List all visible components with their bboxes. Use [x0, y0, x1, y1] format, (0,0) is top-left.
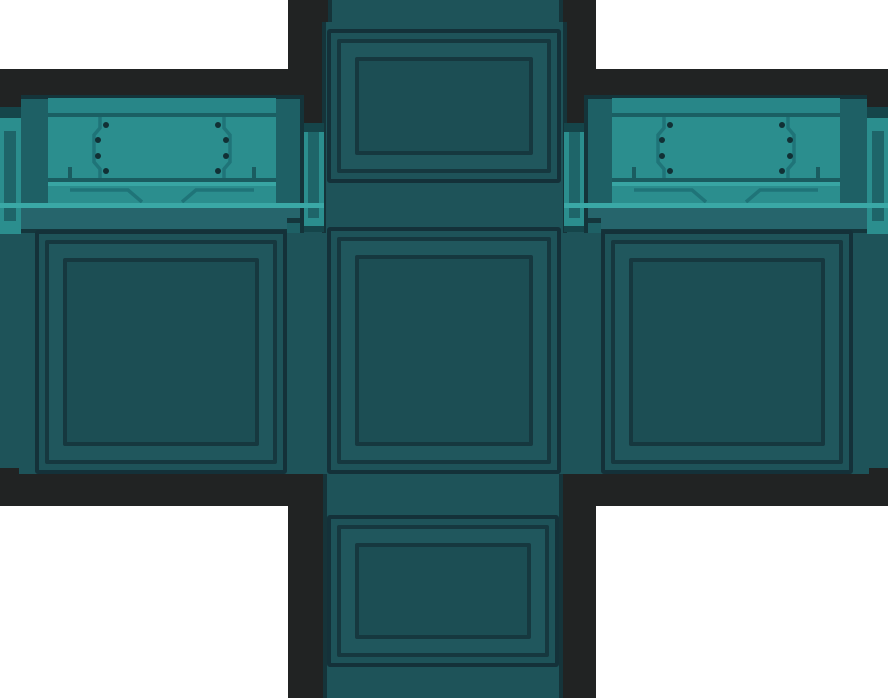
lid-lower-bar — [612, 186, 840, 203]
lid-top-bar — [48, 98, 276, 113]
plate-seam-left — [94, 117, 100, 178]
plate-tick-left — [68, 167, 72, 178]
rivet-dot — [787, 153, 793, 159]
rivet-dot — [223, 137, 229, 143]
side-face-panel — [35, 230, 287, 474]
lower-bar-groove-right — [634, 190, 706, 202]
outer-clasp-cap — [867, 107, 888, 118]
lower-bar-detail — [612, 186, 840, 203]
front-face-panel — [327, 227, 561, 474]
lower-bar-groove-left — [746, 190, 818, 202]
plate-seam-right — [224, 117, 230, 178]
rivet-dot — [223, 153, 229, 159]
bottom-face-field — [355, 543, 531, 639]
lip-band — [601, 207, 867, 229]
lip-extension-bottom-edge — [588, 218, 601, 223]
lid-riveted-plate — [48, 117, 276, 178]
lip-band-extension — [287, 207, 300, 218]
top-face-field — [355, 57, 533, 155]
lid-lower-bar — [48, 186, 276, 203]
rivet-dot — [659, 137, 665, 143]
rivet-dot — [787, 137, 793, 143]
side-face-panel — [601, 230, 853, 474]
lip-band — [21, 207, 287, 229]
lid-top-bar — [612, 98, 840, 113]
hinge-clip-cap — [564, 123, 584, 132]
plate-seam-left — [788, 117, 794, 178]
rivet-dot — [779, 122, 785, 128]
lip-highlight-line — [0, 203, 324, 208]
band-corner-notch-right — [869, 468, 888, 474]
front-face-field — [355, 255, 533, 446]
rivet-dot — [103, 122, 109, 128]
rivet-dot — [659, 153, 665, 159]
bottom-face-panel — [327, 515, 559, 667]
plate-tick-right — [632, 167, 636, 178]
band-corner-notch-left — [0, 468, 19, 474]
plate-seam-right — [658, 117, 664, 178]
top-face-panel — [327, 29, 561, 183]
lip-band-extension — [588, 207, 601, 218]
right-arm — [558, 0, 888, 698]
lip-extension-bottom-edge — [287, 218, 300, 223]
rivet-dot — [215, 122, 221, 128]
rivet-dot — [95, 153, 101, 159]
rivet-dot — [667, 168, 673, 174]
plate-tick-left — [816, 167, 820, 178]
lid-plate-detail — [48, 117, 276, 178]
rivet-dot — [95, 137, 101, 143]
left-arm — [0, 0, 330, 698]
rivet-dot — [215, 168, 221, 174]
plate-tick-right — [252, 167, 256, 178]
rivet-dot — [667, 122, 673, 128]
hinge-clip-bottom-cap — [304, 226, 324, 232]
rivet-dot — [779, 168, 785, 174]
lower-bar-groove-right — [182, 190, 254, 202]
hinge-clip-cap — [304, 123, 324, 132]
crate-texture-sprite — [0, 0, 888, 698]
side-face-field — [629, 258, 825, 446]
lower-bar-groove-left — [70, 190, 142, 202]
hinge-clip-bottom-cap — [564, 226, 584, 232]
rivet-dot — [103, 168, 109, 174]
side-face-field — [63, 258, 259, 446]
lip-highlight-line — [564, 203, 888, 208]
lower-bar-detail — [48, 186, 276, 203]
outer-clasp-cap — [0, 107, 21, 118]
lid-plate-detail — [612, 117, 840, 178]
lid-riveted-plate — [612, 117, 840, 178]
